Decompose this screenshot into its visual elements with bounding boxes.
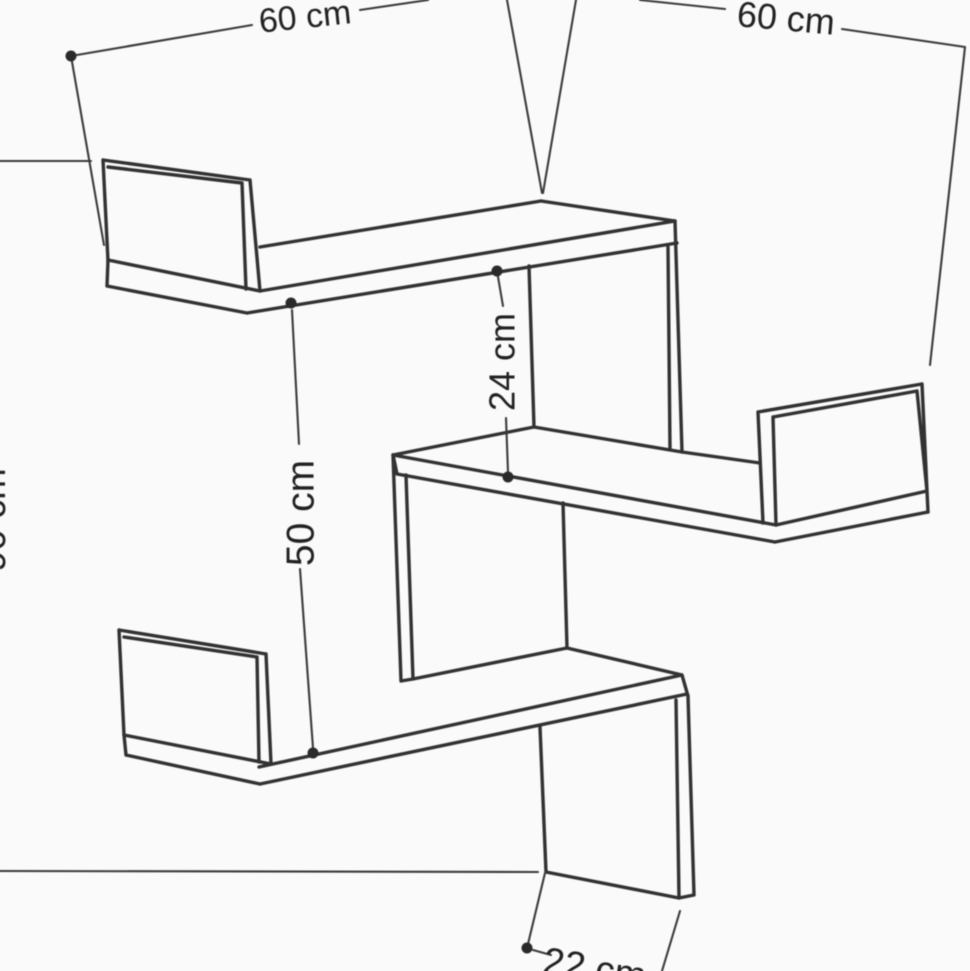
svg-text:22 cm: 22 cm [540, 940, 649, 971]
svg-text:60 cm: 60 cm [735, 0, 836, 43]
svg-text:50 cm: 50 cm [280, 460, 323, 566]
svg-text:90 cm: 90 cm [0, 468, 14, 571]
svg-text:24 cm: 24 cm [482, 313, 523, 411]
svg-text:60 cm: 60 cm [257, 0, 353, 41]
